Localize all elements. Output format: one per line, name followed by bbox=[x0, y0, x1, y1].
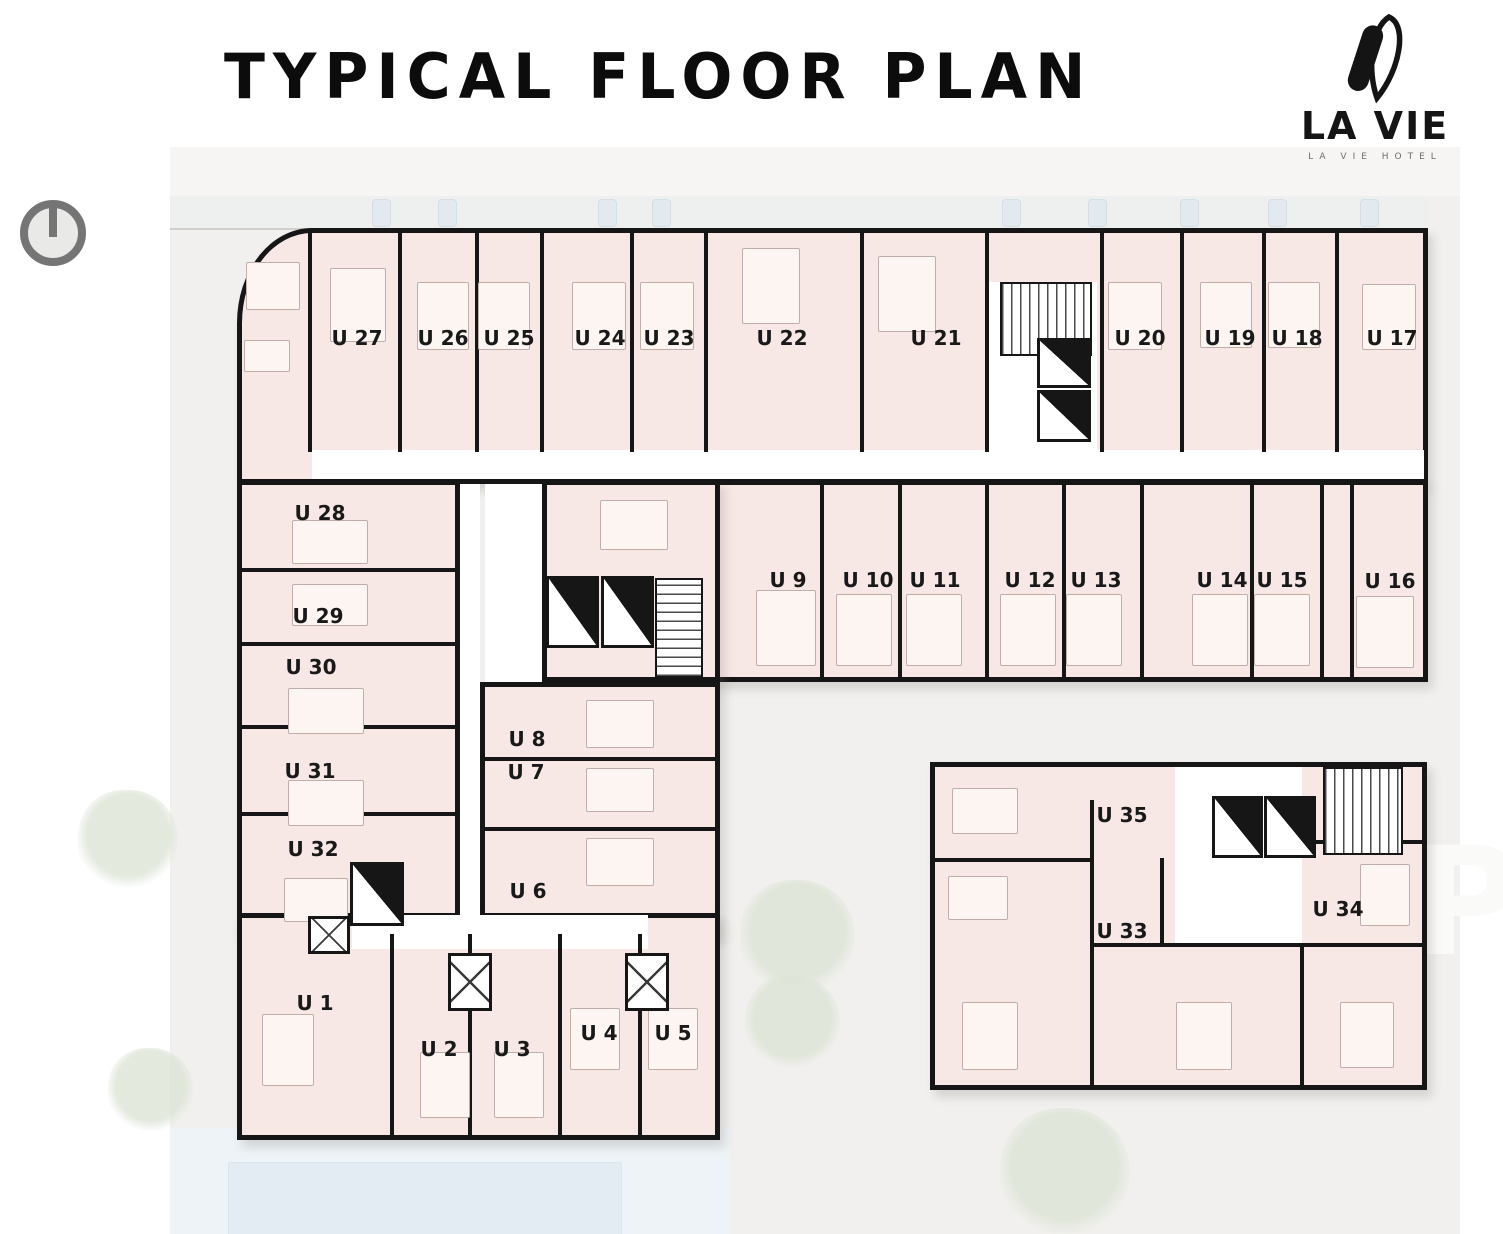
unit-label-u4: U 4 bbox=[580, 1021, 617, 1045]
tree-icon bbox=[1000, 1108, 1130, 1234]
unit-label-u33: U 33 bbox=[1096, 919, 1147, 943]
brand-name: LA VIE bbox=[1290, 104, 1460, 148]
wall bbox=[820, 484, 824, 678]
furniture bbox=[1066, 594, 1122, 666]
wall bbox=[985, 484, 989, 678]
unit-label-u20: U 20 bbox=[1114, 326, 1165, 350]
unit-label-u18: U 18 bbox=[1271, 326, 1322, 350]
unit-label-u25: U 25 bbox=[483, 326, 534, 350]
tree-icon bbox=[78, 790, 178, 890]
wall bbox=[1335, 233, 1339, 452]
furniture bbox=[246, 262, 300, 310]
furniture bbox=[952, 788, 1018, 834]
unit-label-u12: U 12 bbox=[1004, 568, 1055, 592]
wall bbox=[1180, 233, 1184, 452]
elevator-icon bbox=[1037, 338, 1091, 388]
unit-label-u21: U 21 bbox=[910, 326, 961, 350]
elevator-icon bbox=[1212, 796, 1263, 858]
wall bbox=[484, 827, 716, 831]
unit-label-u7: U 7 bbox=[507, 760, 544, 784]
unit-label-u13: U 13 bbox=[1070, 568, 1121, 592]
furniture bbox=[756, 590, 816, 666]
wall bbox=[558, 934, 562, 1136]
wall bbox=[241, 568, 456, 572]
unit-label-u6: U 6 bbox=[509, 879, 546, 903]
unit-label-u8: U 8 bbox=[508, 727, 545, 751]
unit-label-u28: U 28 bbox=[294, 501, 345, 525]
corridor-core-hall bbox=[485, 484, 542, 682]
furniture bbox=[1192, 594, 1248, 666]
unit-label-u32: U 32 bbox=[287, 837, 338, 861]
furniture bbox=[494, 1052, 544, 1118]
floor-plan-page: P TYPICAL FLOOR PLAN LA VIE LA VIE HOTEL bbox=[0, 0, 1503, 1234]
car-icon bbox=[1268, 199, 1287, 227]
car-icon bbox=[598, 199, 617, 227]
elevator-shaft-icon bbox=[308, 916, 350, 954]
car-icon bbox=[652, 199, 671, 227]
furniture bbox=[906, 594, 962, 666]
la-vie-v-icon bbox=[1320, 10, 1430, 110]
wall bbox=[1100, 233, 1104, 452]
wall bbox=[860, 233, 864, 452]
wall bbox=[308, 233, 312, 452]
wall bbox=[241, 642, 456, 646]
unit-label-u9: U 9 bbox=[769, 568, 806, 592]
unit-label-u3: U 3 bbox=[493, 1037, 530, 1061]
furniture bbox=[742, 248, 800, 324]
unit-label-u22: U 22 bbox=[756, 326, 807, 350]
parking-strip bbox=[170, 196, 1428, 230]
wall bbox=[932, 858, 1092, 862]
furniture bbox=[1254, 594, 1310, 666]
north-compass-icon bbox=[20, 200, 86, 266]
furniture bbox=[244, 340, 290, 372]
stairs-icon bbox=[655, 578, 703, 678]
swimming-pool bbox=[228, 1162, 622, 1234]
wall bbox=[540, 233, 544, 452]
elevator-icon bbox=[1037, 390, 1091, 442]
furniture bbox=[962, 1002, 1018, 1070]
unit-label-u34: U 34 bbox=[1312, 897, 1363, 921]
furniture bbox=[586, 768, 654, 812]
furniture bbox=[1356, 596, 1414, 668]
stairs-icon bbox=[1323, 767, 1403, 855]
unit-label-u29: U 29 bbox=[292, 604, 343, 628]
furniture bbox=[288, 688, 364, 734]
car-icon bbox=[372, 199, 391, 227]
elevator-icon bbox=[546, 576, 599, 648]
furniture bbox=[262, 1014, 314, 1086]
furniture bbox=[292, 520, 368, 564]
compass-needle bbox=[49, 206, 57, 237]
furniture bbox=[948, 876, 1008, 920]
furniture bbox=[600, 500, 668, 550]
elevator-icon bbox=[601, 576, 654, 648]
page-title: TYPICAL FLOOR PLAN bbox=[224, 41, 1093, 114]
unit-label-u19: U 19 bbox=[1204, 326, 1255, 350]
unit-label-u31: U 31 bbox=[284, 759, 335, 783]
unit-label-u15: U 15 bbox=[1256, 568, 1307, 592]
unit-label-u35: U 35 bbox=[1096, 803, 1147, 827]
furniture bbox=[836, 594, 892, 666]
wall bbox=[390, 934, 394, 1136]
wall bbox=[1350, 484, 1354, 678]
brand-tagline: LA VIE HOTEL bbox=[1290, 152, 1460, 162]
elevator-icon bbox=[1264, 796, 1316, 858]
elevator-shaft-icon bbox=[448, 953, 492, 1011]
unit-label-u24: U 24 bbox=[574, 326, 625, 350]
car-icon bbox=[1360, 199, 1379, 227]
car-icon bbox=[1180, 199, 1199, 227]
wall bbox=[1262, 233, 1266, 452]
furniture bbox=[586, 700, 654, 748]
wall bbox=[1090, 943, 1425, 947]
furniture bbox=[1000, 594, 1056, 666]
car-icon bbox=[438, 199, 457, 227]
hotel-logo: LA VIE LA VIE HOTEL bbox=[1290, 10, 1460, 162]
wall bbox=[1160, 858, 1164, 946]
wall bbox=[398, 233, 402, 452]
unit-label-u30: U 30 bbox=[285, 655, 336, 679]
car-icon bbox=[1088, 199, 1107, 227]
unit-label-u17: U 17 bbox=[1366, 326, 1417, 350]
unit-label-u11: U 11 bbox=[909, 568, 960, 592]
unit-label-u5: U 5 bbox=[654, 1021, 691, 1045]
unit-label-u1: U 1 bbox=[296, 991, 333, 1015]
furniture bbox=[288, 780, 364, 826]
furniture bbox=[420, 1052, 470, 1118]
furniture bbox=[1340, 1002, 1394, 1068]
elevator-icon bbox=[350, 862, 404, 926]
unit-label-u16: U 16 bbox=[1364, 569, 1415, 593]
unit-label-u23: U 23 bbox=[643, 326, 694, 350]
wall bbox=[985, 233, 989, 452]
furniture bbox=[1176, 1002, 1232, 1070]
wall bbox=[898, 484, 902, 678]
wall bbox=[1300, 943, 1304, 1088]
elevator-shaft-icon bbox=[625, 953, 669, 1011]
wall bbox=[630, 233, 634, 452]
corridor-west-vertical bbox=[460, 484, 480, 915]
wall bbox=[1140, 484, 1144, 678]
unit-label-u27: U 27 bbox=[331, 326, 382, 350]
corridor-main bbox=[312, 450, 1424, 479]
unit-label-u26: U 26 bbox=[417, 326, 468, 350]
wall bbox=[1320, 484, 1324, 678]
building-main-top-wing bbox=[237, 228, 1428, 484]
wall bbox=[704, 233, 708, 452]
car-icon bbox=[1002, 199, 1021, 227]
furniture bbox=[586, 838, 654, 886]
furniture bbox=[878, 256, 936, 332]
unit-label-u2: U 2 bbox=[420, 1037, 457, 1061]
furniture bbox=[1360, 864, 1410, 926]
unit-label-u10: U 10 bbox=[842, 568, 893, 592]
unit-label-u14: U 14 bbox=[1196, 568, 1247, 592]
